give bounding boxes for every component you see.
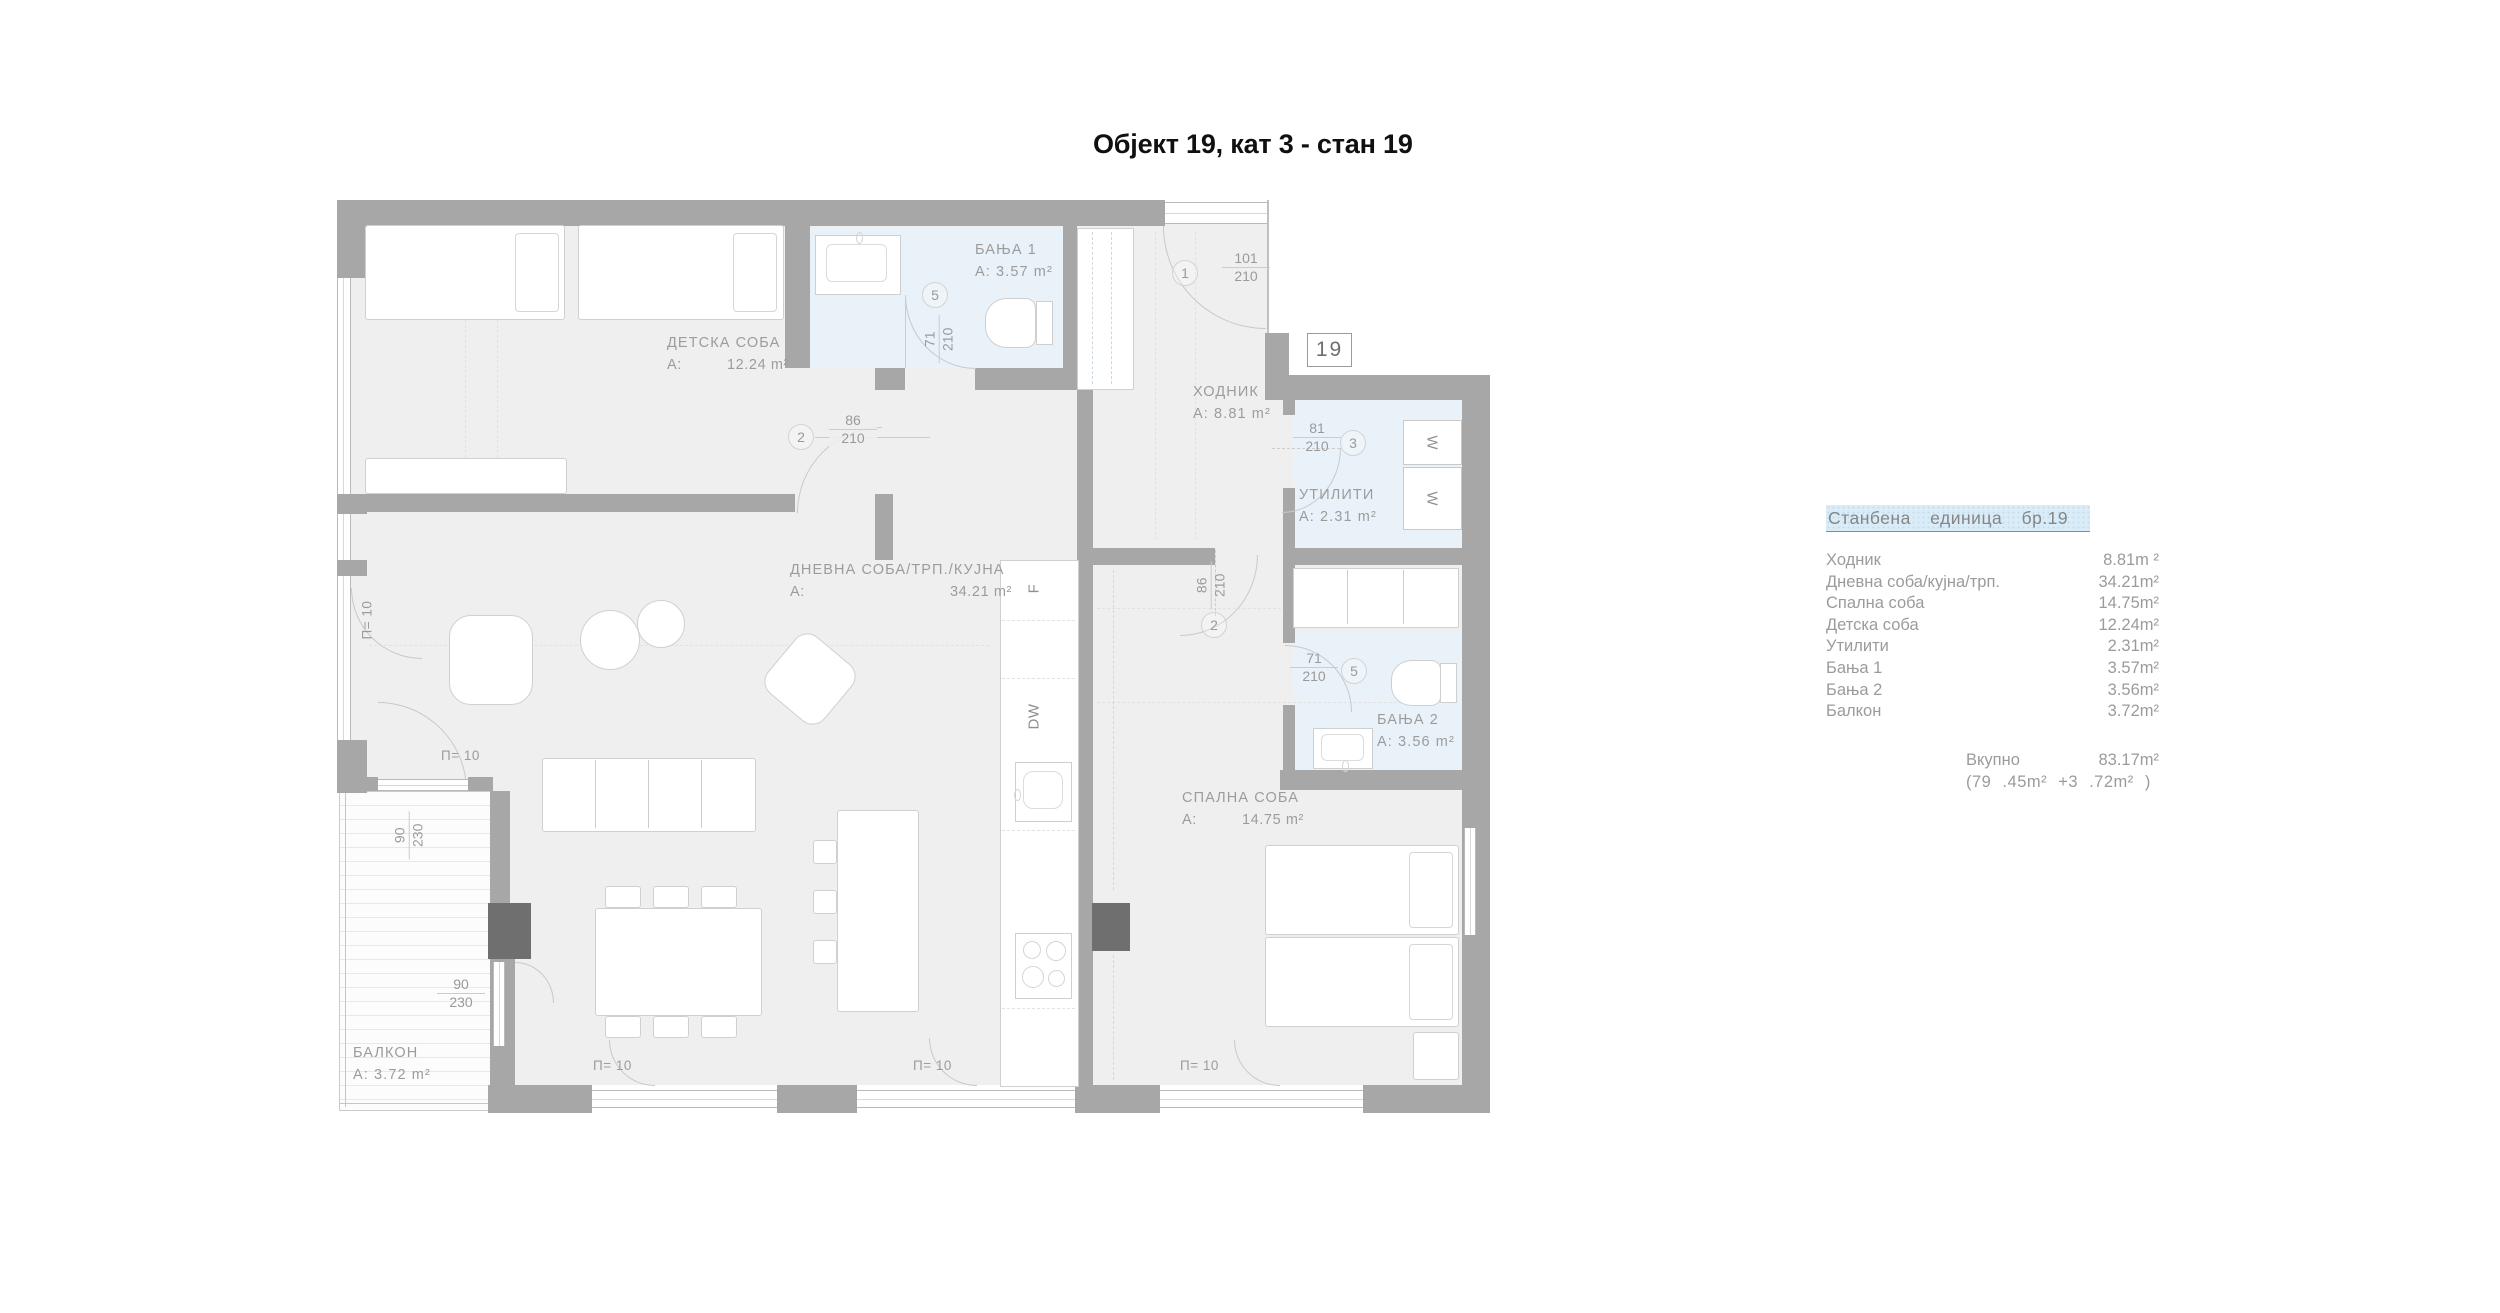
- toilet: [985, 298, 1053, 346]
- sofa-cushion-line: [595, 760, 596, 828]
- stove: [1015, 933, 1072, 999]
- page-title: Објект 19, кат 3 - стан 19: [1093, 129, 1413, 160]
- wall: [1063, 226, 1077, 390]
- wall: [490, 1049, 515, 1085]
- door-tag: 5: [1341, 658, 1367, 684]
- pillar: [488, 903, 531, 959]
- wall: [490, 791, 510, 903]
- wall: [1277, 375, 1490, 400]
- legend-row: Спална соба14.75m²: [1826, 593, 2159, 615]
- pouf: [580, 610, 640, 670]
- balcony-door-panel: [378, 779, 468, 791]
- wall: [1077, 388, 1093, 1085]
- balcony-door2-panel: [493, 962, 505, 1046]
- door-tag: 1: [1172, 260, 1198, 286]
- room-label-hall: ХОДНИК A: 8.81 m²: [1193, 382, 1271, 426]
- wall: [468, 777, 493, 791]
- closet-line: [1111, 232, 1112, 384]
- window: [592, 1090, 777, 1108]
- wall: [488, 1085, 592, 1113]
- window: [337, 514, 351, 560]
- kitchen-island: [837, 810, 919, 1012]
- door-dim: 71210: [1290, 650, 1338, 685]
- hall-closet: [1077, 228, 1134, 390]
- cabinet-line: [1002, 830, 1075, 831]
- chair: [701, 886, 737, 908]
- legend-row: Бања 13.57m²: [1826, 658, 2159, 680]
- stool: [813, 940, 837, 964]
- dishwasher-label: DW: [1026, 704, 1043, 730]
- room-label-living: ДНЕВНА СОБА/ТРП./КУЈНА A:34.21 m²: [790, 560, 1012, 604]
- room-label-bath2: БАЊА 2 A: 3.56 m²: [1377, 710, 1455, 754]
- unit-number-badge: 19: [1307, 333, 1352, 367]
- window: [337, 576, 351, 740]
- room-label-bath1: БАЊА 1 A: 3.57 m²: [975, 240, 1053, 284]
- wall: [975, 368, 1063, 390]
- floor-plan: 1 101210 19 2 86210 5 71210 2 86210 3 81…: [337, 200, 1490, 1113]
- wardrobe-divider: [1403, 570, 1404, 624]
- chair: [605, 886, 641, 908]
- area-legend: Станбена единица бр.19 Ходник8.81m ² Дне…: [1826, 505, 2171, 792]
- sill-label: П= 10: [593, 1058, 632, 1073]
- chair: [701, 1016, 737, 1038]
- door-dim: 101210: [1222, 250, 1270, 285]
- door-tag: 3: [1340, 430, 1366, 456]
- chair: [653, 886, 689, 908]
- guide-line: [1155, 232, 1156, 540]
- pillar: [1092, 903, 1130, 951]
- legend-rows: Ходник8.81m ² Дневна соба/кујна/трп.34.2…: [1826, 550, 2159, 723]
- floor-plan-page: Објект 19, кат 3 - стан 19: [0, 0, 2500, 1313]
- armchair: [449, 615, 533, 705]
- sofa-cushion-line: [648, 760, 649, 828]
- door-dim: 71210: [922, 315, 957, 363]
- legend-row: Бања 23.56m²: [1826, 680, 2159, 702]
- balcony-door-dim: 90230: [392, 811, 427, 859]
- wall: [1075, 1085, 1160, 1113]
- legend-row: Детска соба12.24m²: [1826, 615, 2159, 637]
- balcony-rail-bottom: [340, 1103, 490, 1104]
- wall: [1283, 400, 1295, 415]
- legend-row: Балкон3.72m²: [1826, 701, 2159, 723]
- wall: [337, 777, 378, 791]
- sill-label: П= 10: [360, 580, 375, 640]
- sink: [815, 235, 901, 295]
- sill-label: П= 10: [441, 748, 480, 763]
- wall: [365, 494, 795, 512]
- sill-label: П= 10: [913, 1058, 952, 1073]
- washer: W: [1403, 467, 1462, 530]
- legend-total-breakdown: (79 .45m² +3 .72m² ): [1966, 773, 2171, 792]
- legend-row: Утилити2.31m²: [1826, 636, 2159, 658]
- chair: [653, 1016, 689, 1038]
- fridge-label: F: [1025, 584, 1042, 594]
- room-label-utility: УТИЛИТИ A: 2.31 m²: [1299, 485, 1377, 529]
- wall: [337, 560, 367, 576]
- legend-row: Дневна соба/кујна/трп.34.21m²: [1826, 572, 2159, 594]
- pillow: [733, 233, 777, 312]
- stool: [813, 840, 837, 864]
- room-label-bedroom: СПАЛНА СОБА A:14.75 m²: [1182, 788, 1304, 832]
- wall: [1283, 548, 1463, 565]
- wall: [350, 200, 1165, 226]
- entry-door-frame: [1165, 202, 1267, 224]
- washer: W: [1403, 420, 1462, 465]
- pillow: [1409, 944, 1453, 1020]
- cabinet-line: [1002, 620, 1075, 621]
- wall: [1363, 1085, 1490, 1113]
- sill-label: П= 10: [1180, 1058, 1219, 1073]
- door-tag: 5: [922, 282, 948, 308]
- closet-line: [1092, 232, 1093, 384]
- room-label-balcony: БАЛКОН A: 3.72 m²: [353, 1043, 431, 1087]
- cabinet-line: [1002, 1008, 1075, 1009]
- dining-table: [595, 908, 762, 1016]
- balcony-door2-dim: 90230: [437, 976, 485, 1011]
- window: [1464, 828, 1476, 935]
- door-leaf: [905, 295, 906, 368]
- wall: [1462, 375, 1490, 1085]
- pouf: [637, 600, 685, 648]
- legend-total: Вкупно83.17m²: [1966, 751, 2159, 770]
- sofa-cushion-line: [701, 760, 702, 828]
- wardrobe: [1293, 568, 1459, 628]
- legend-header: Станбена единица бр.19: [1826, 505, 2090, 532]
- wardrobe-divider: [1347, 570, 1348, 624]
- stool: [813, 890, 837, 914]
- kitchen-sink: [1015, 762, 1072, 822]
- wall: [1283, 705, 1295, 770]
- room-label-children: ДЕТСКА СОБА A:12.24 m²: [667, 333, 789, 377]
- wall: [777, 1085, 857, 1113]
- window: [857, 1090, 1075, 1108]
- pillow: [1409, 852, 1453, 928]
- sink: [1313, 728, 1373, 769]
- pillow: [515, 233, 559, 312]
- toilet: [1391, 660, 1457, 704]
- nightstand: [1413, 1032, 1459, 1080]
- door-dim: 81210: [1293, 420, 1341, 455]
- legend-row: Ходник8.81m ²: [1826, 550, 2159, 572]
- wall: [1280, 770, 1490, 790]
- desk: [365, 458, 567, 494]
- door-tag: 2: [1201, 612, 1227, 638]
- cabinet-line: [1002, 678, 1075, 679]
- window: [337, 278, 351, 494]
- guide-line: [1113, 955, 1114, 1080]
- sofa: [542, 758, 756, 832]
- wall: [875, 368, 905, 390]
- chair: [605, 1016, 641, 1038]
- guide-line: [1113, 570, 1114, 890]
- wall: [337, 494, 367, 514]
- window: [1160, 1090, 1363, 1108]
- door-dim: 86210: [829, 412, 877, 447]
- balcony-rail-left: [345, 793, 346, 1107]
- door-tag: 2: [788, 424, 814, 450]
- door-dim: 86210: [1194, 561, 1229, 609]
